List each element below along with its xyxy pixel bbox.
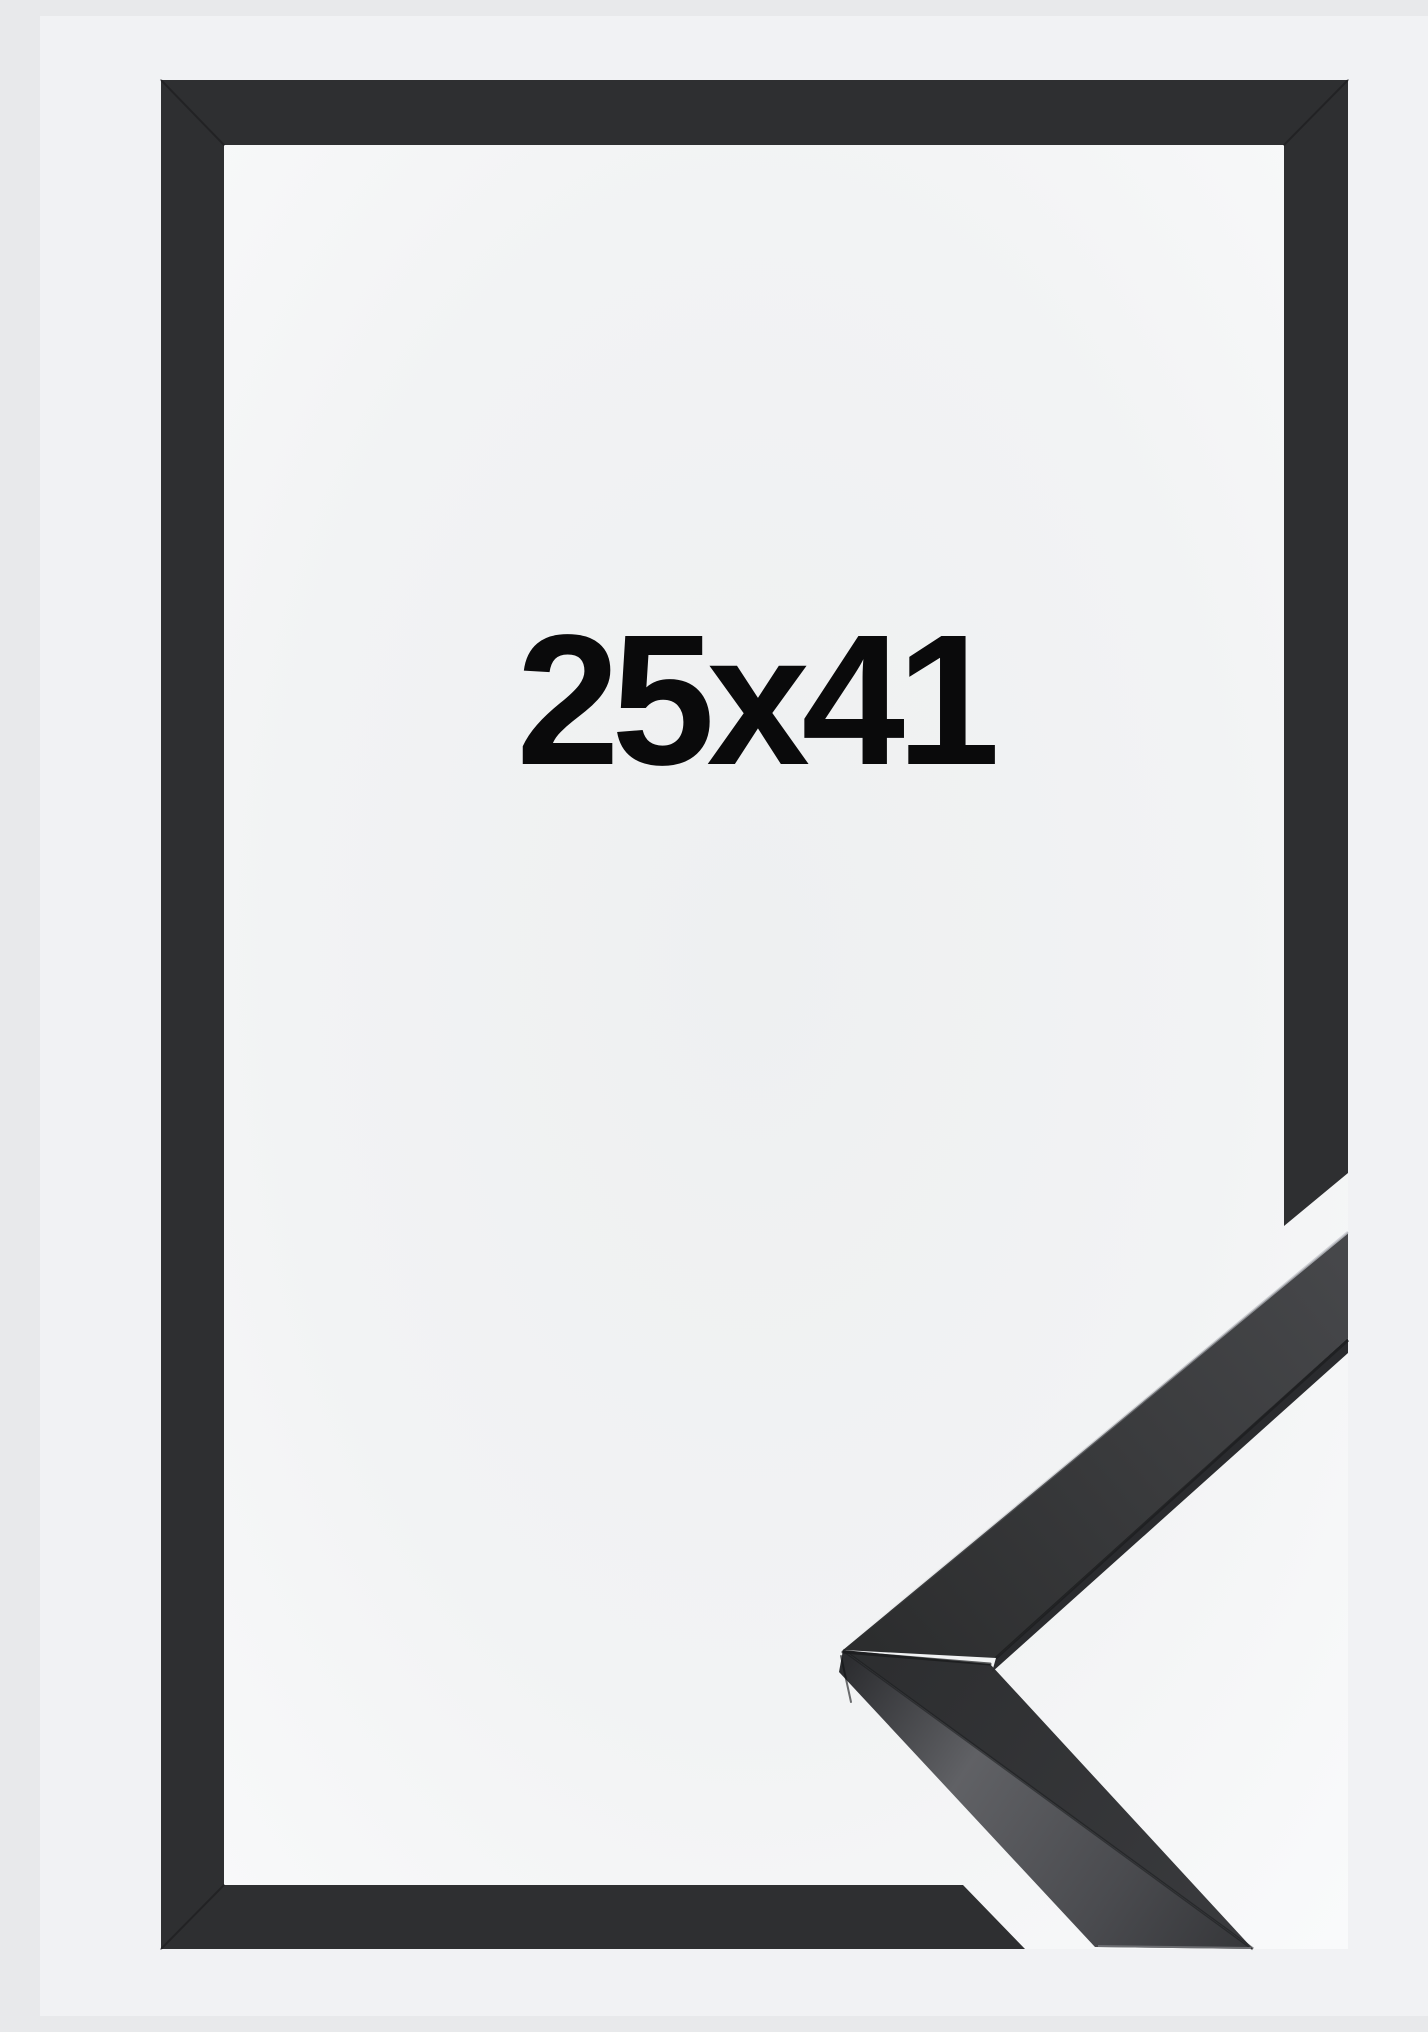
frame-opening <box>224 145 1348 1949</box>
frame-illustration <box>40 16 1428 2016</box>
product-image: 25x41 <box>40 16 1428 2016</box>
size-label: 25x41 <box>40 608 1428 794</box>
